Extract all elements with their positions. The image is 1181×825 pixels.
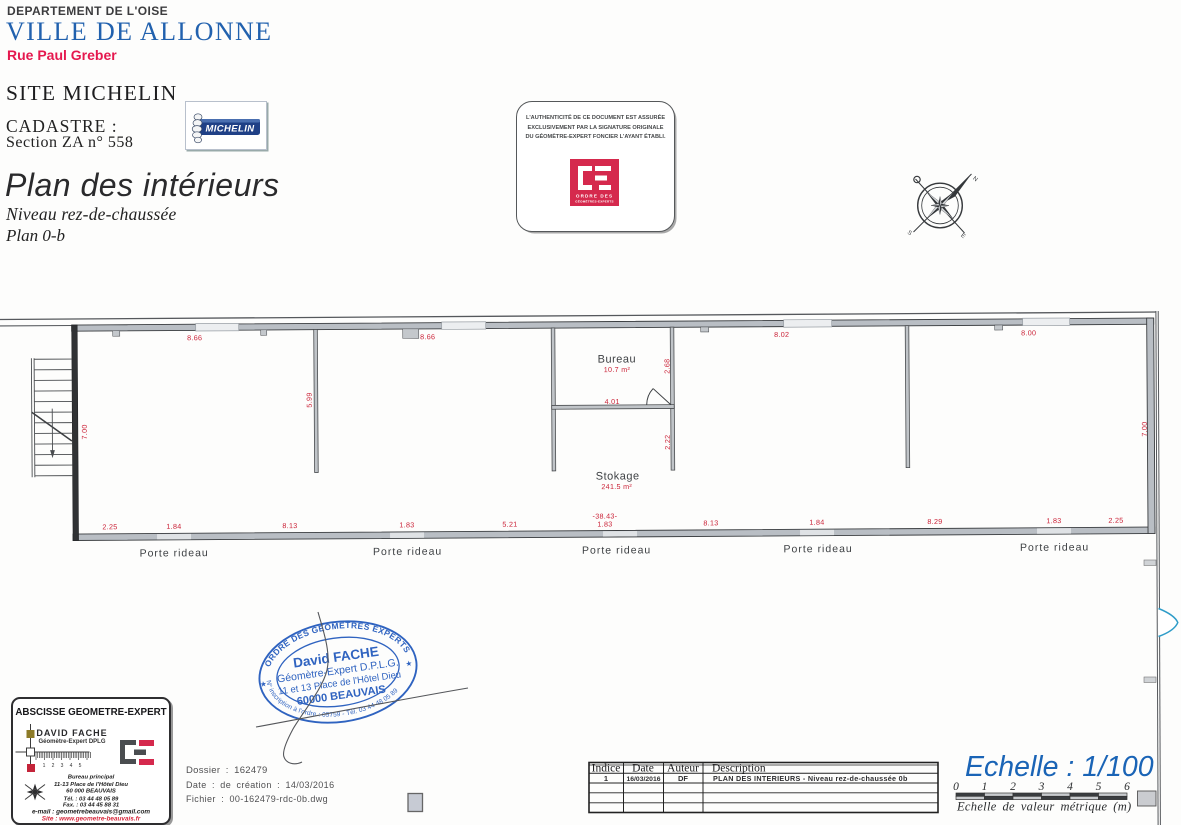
- svg-text:8.02: 8.02: [774, 330, 789, 339]
- svg-text:DF: DF: [678, 774, 688, 783]
- svg-text:E: E: [959, 233, 966, 240]
- svg-text:S: S: [906, 230, 913, 237]
- svg-text:PLAN DES INTERIEURS - Niveau r: PLAN DES INTERIEURS - Niveau rez-de-chau…: [713, 774, 908, 783]
- svg-text:5: 5: [79, 763, 82, 769]
- svg-text:★: ★: [259, 679, 267, 689]
- svg-text:7.00: 7.00: [1140, 421, 1149, 436]
- svg-text:1: 1: [982, 781, 988, 793]
- svg-text:0: 0: [953, 781, 959, 793]
- svg-text:Echelle : 1/100: Echelle : 1/100: [965, 751, 1154, 783]
- svg-text:6: 6: [1124, 781, 1130, 793]
- svg-text:Auteur: Auteur: [667, 763, 699, 775]
- svg-text:1.83: 1.83: [1046, 516, 1061, 525]
- svg-text:Porte rideau: Porte rideau: [783, 543, 852, 555]
- svg-text:Indice: Indice: [592, 763, 621, 775]
- svg-text:8.13: 8.13: [282, 521, 297, 530]
- svg-text:1: 1: [604, 774, 608, 783]
- svg-text:Porte rideau: Porte rideau: [373, 546, 442, 558]
- svg-text:Site : www.geometre-beauvais.f: Site : www.geometre-beauvais.fr: [42, 816, 141, 823]
- svg-text:Echelle de valeur métrique (m): Echelle de valeur métrique (m): [956, 800, 1132, 814]
- svg-text:5.99: 5.99: [305, 392, 314, 407]
- svg-text:Description: Description: [712, 763, 766, 775]
- svg-text:11-13 Place de l'Hôtel Dieu: 11-13 Place de l'Hôtel Dieu: [54, 782, 128, 788]
- svg-text:e-mail : geometrebeauvais@gmai: e-mail : geometrebeauvais@gmail.com: [32, 809, 150, 816]
- svg-text:Porte rideau: Porte rideau: [140, 547, 209, 559]
- svg-text:Porte rideau: Porte rideau: [582, 544, 651, 556]
- svg-text:4: 4: [1067, 781, 1073, 793]
- svg-text:8.29: 8.29: [927, 517, 942, 526]
- svg-text:2.25: 2.25: [102, 522, 117, 531]
- svg-text:60 000 BEAUVAIS: 60 000 BEAUVAIS: [66, 789, 116, 795]
- svg-text:5.21: 5.21: [502, 520, 517, 529]
- svg-text:2.25: 2.25: [1108, 516, 1123, 525]
- svg-text:2: 2: [52, 763, 55, 769]
- svg-text:Stokage: Stokage: [596, 470, 640, 482]
- svg-text:10.7 m²: 10.7 m²: [604, 365, 631, 374]
- svg-text:8.00: 8.00: [1021, 328, 1036, 337]
- svg-text:1.83: 1.83: [399, 520, 414, 529]
- svg-text:2: 2: [1010, 781, 1016, 793]
- svg-text:4: 4: [70, 763, 73, 769]
- svg-text:241.5 m²: 241.5 m²: [601, 482, 632, 491]
- svg-text:5: 5: [1096, 781, 1102, 793]
- svg-text:4.01: 4.01: [605, 397, 620, 406]
- svg-text:3: 3: [1038, 781, 1045, 793]
- svg-text:1: 1: [43, 763, 46, 769]
- svg-text:3: 3: [61, 763, 64, 769]
- svg-text:Porte rideau: Porte rideau: [1020, 541, 1089, 553]
- svg-text:8.66: 8.66: [187, 333, 202, 342]
- svg-text:1.84: 1.84: [809, 518, 824, 527]
- svg-text:★: ★: [405, 659, 413, 669]
- svg-text:Bureau principal: Bureau principal: [68, 775, 115, 781]
- svg-text:8.13: 8.13: [703, 518, 718, 527]
- svg-text:7.00: 7.00: [80, 424, 89, 439]
- svg-text:2.68: 2.68: [662, 359, 671, 374]
- svg-text:2.22: 2.22: [663, 435, 672, 450]
- svg-text:Date: Date: [632, 763, 654, 775]
- svg-text:N: N: [971, 176, 978, 183]
- svg-text:8.66: 8.66: [420, 332, 435, 341]
- svg-text:1.84: 1.84: [166, 522, 181, 531]
- svg-text:1.83: 1.83: [597, 520, 612, 529]
- svg-text:Bureau: Bureau: [598, 353, 637, 365]
- svg-text:16/03/2016: 16/03/2016: [626, 776, 660, 783]
